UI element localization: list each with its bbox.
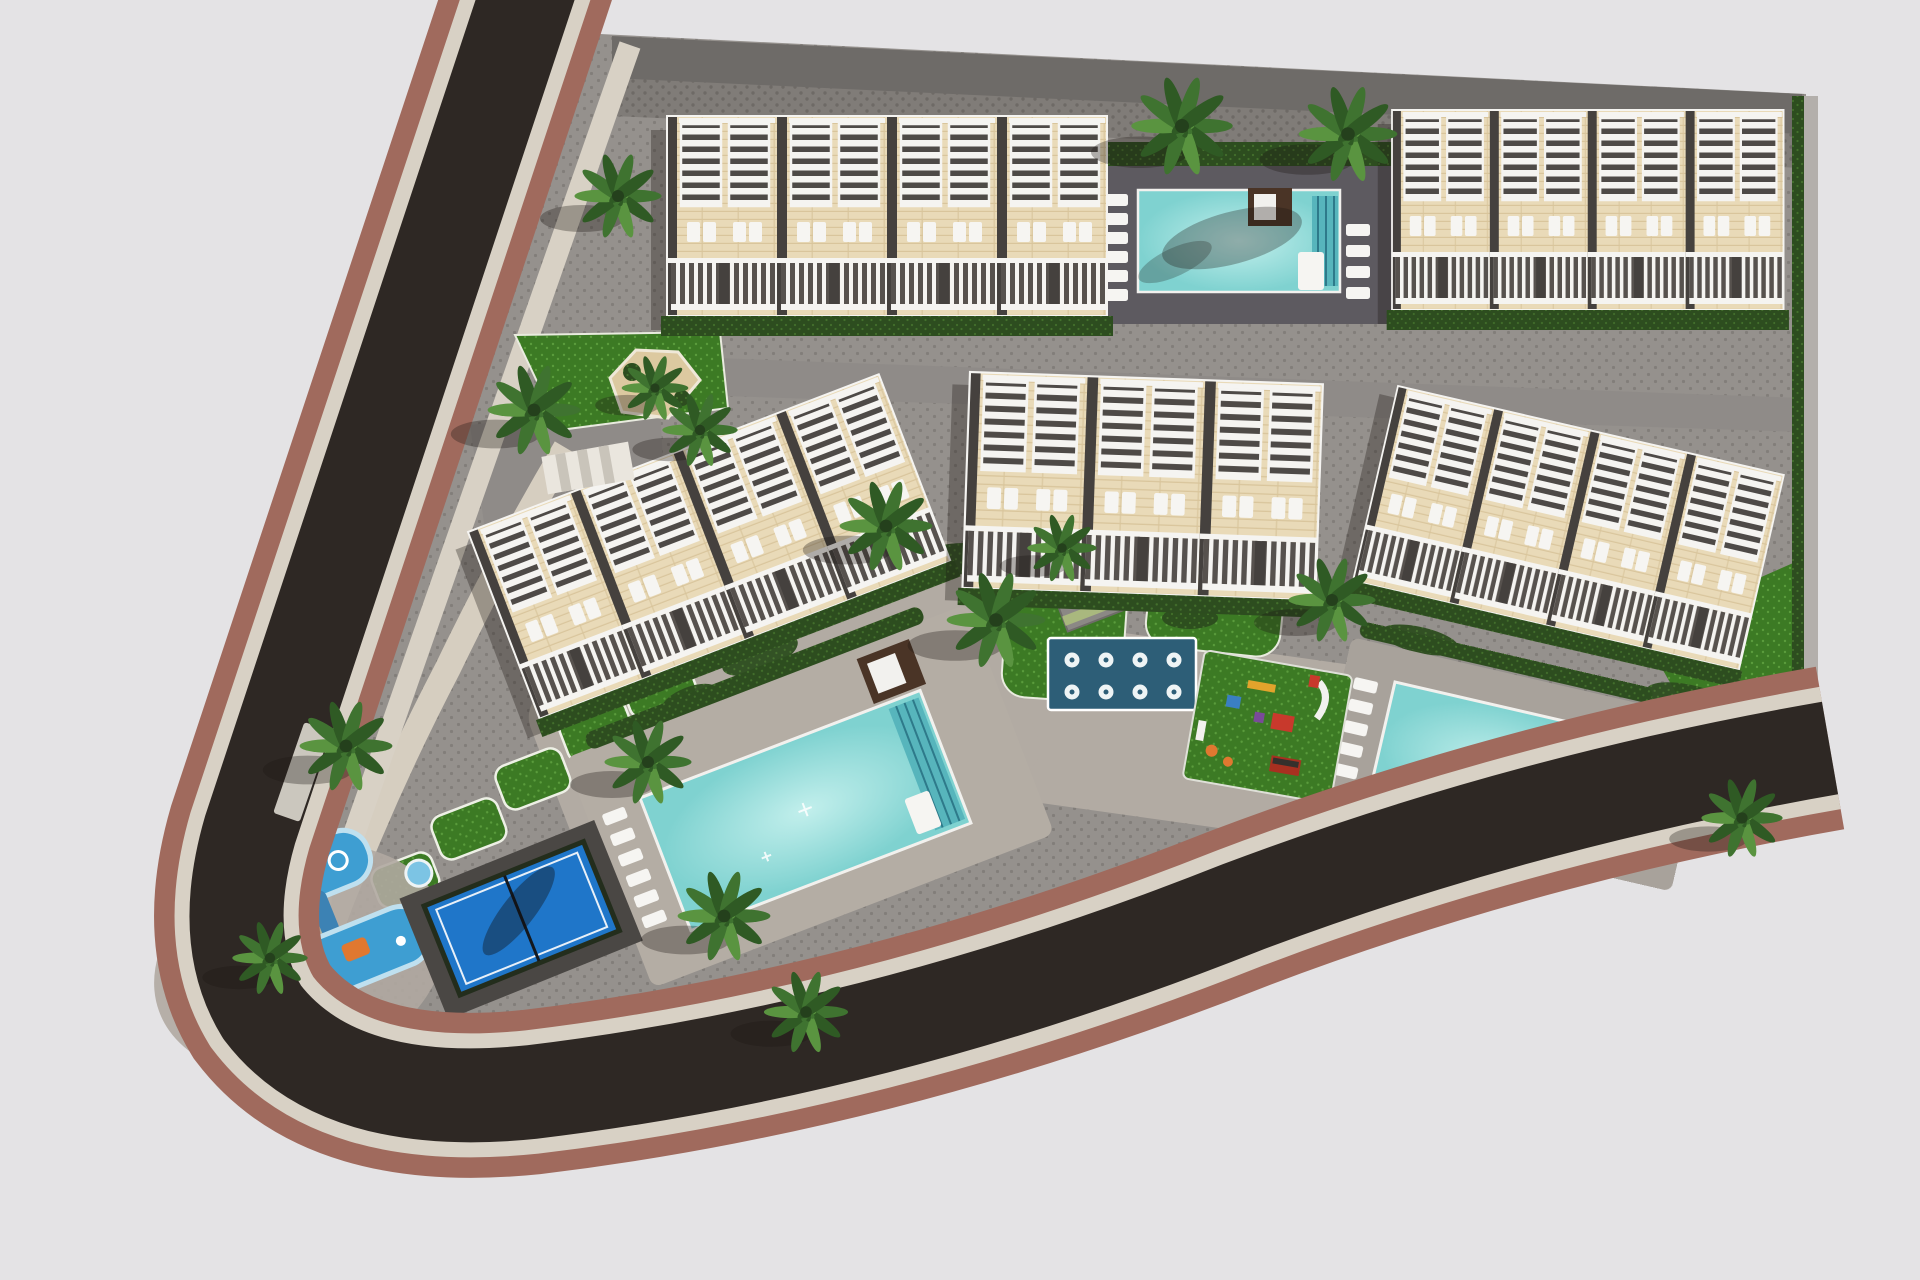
boundary-curb-east: [1804, 96, 1818, 712]
building-block-4: [945, 371, 1327, 617]
splash-pad: [1048, 638, 1196, 710]
playground-ladder: [1308, 675, 1320, 689]
site-plan-render: [0, 0, 1920, 1280]
playground-block: [1253, 712, 1265, 724]
playground-cube: [1226, 695, 1242, 709]
in-pool-lounger: [1298, 252, 1324, 290]
building-hedge: [661, 316, 1113, 336]
building-hedge: [1387, 310, 1789, 330]
boundary-hedge-east: [1792, 96, 1806, 706]
building-block-1: [651, 116, 1113, 336]
site-plan-svg: [0, 0, 1920, 1280]
playground: [1182, 650, 1352, 804]
building-block-2: [1378, 110, 1789, 330]
